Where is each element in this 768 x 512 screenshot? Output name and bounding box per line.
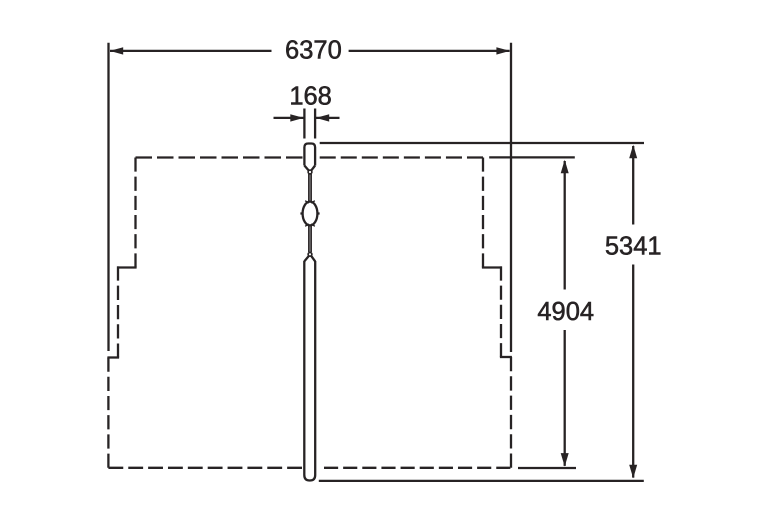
svg-text:5341: 5341 <box>605 232 662 260</box>
svg-text:168: 168 <box>289 83 332 111</box>
svg-text:6370: 6370 <box>285 37 342 65</box>
svg-text:4904: 4904 <box>537 298 594 326</box>
